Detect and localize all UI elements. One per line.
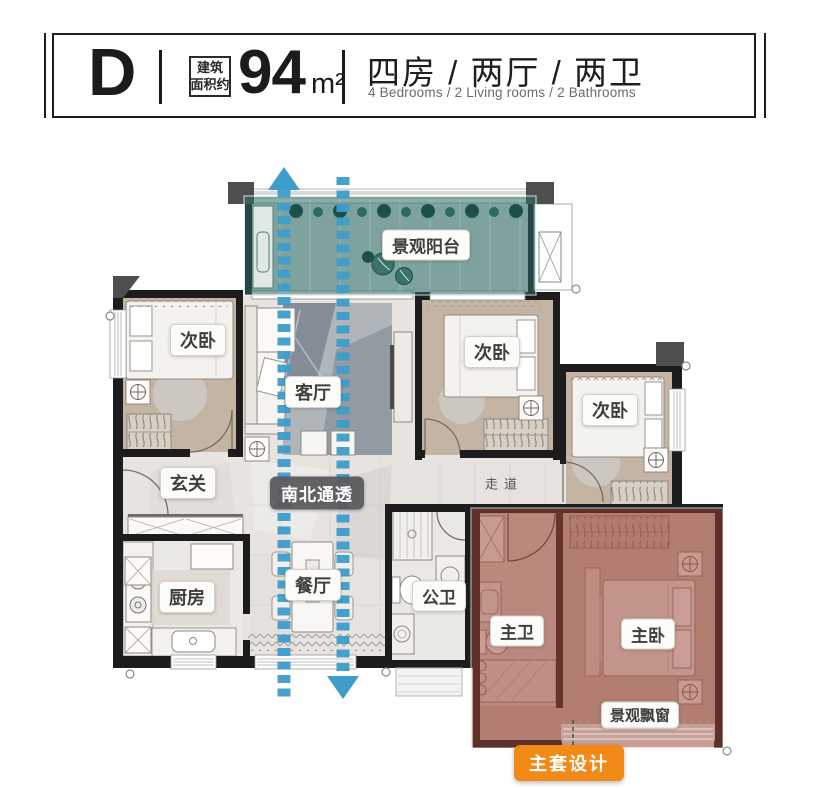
- arrow-up-head: [268, 167, 300, 190]
- master-suite-badge: 主套设计: [514, 745, 624, 781]
- label-bedroom-middle: 次卧: [464, 336, 520, 368]
- ventilation-badge: 南北通透: [270, 477, 364, 510]
- label-master-bedroom: 主卧: [621, 619, 675, 650]
- arrow-down-head: [327, 676, 359, 699]
- label-bedroom-left: 次卧: [170, 324, 226, 356]
- label-public-bath: 公卫: [412, 581, 466, 612]
- label-master-bath: 主卫: [490, 616, 544, 647]
- floorplan-drawing: [0, 0, 817, 788]
- label-living-room: 客厅: [285, 376, 341, 408]
- label-entry: 玄关: [160, 467, 216, 499]
- label-kitchen: 厨房: [159, 581, 215, 613]
- label-corridor: 走道: [485, 474, 523, 493]
- label-balcony: 景观阳台: [382, 230, 470, 261]
- label-bay-window: 景观飘窗: [601, 702, 679, 729]
- floorplan-canvas: 景观阳台 次卧 客厅 次卧 次卧 玄关 走道 厨房 餐厅 公卫 主卫 主卧 景观…: [0, 0, 817, 788]
- porch-steps: [396, 668, 462, 696]
- label-bedroom-right: 次卧: [582, 394, 638, 426]
- label-dining: 餐厅: [285, 569, 341, 601]
- floorplan-page: D 建筑 面积约 94 m² 四房 / 两厅 / 两卫 4 Bedrooms /…: [0, 0, 817, 788]
